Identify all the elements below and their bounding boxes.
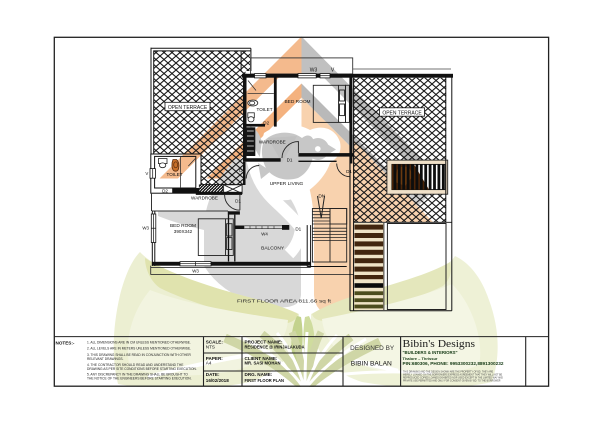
svg-text:W3: W3	[310, 67, 318, 73]
svg-text:OPEN TERRACE: OPEN TERRACE	[168, 105, 208, 111]
svg-text:FIRST FLOOR PLAN: FIRST FLOOR PLAN	[245, 378, 285, 383]
svg-text:NTS: NTS	[206, 345, 215, 350]
svg-text:D2: D2	[162, 188, 168, 193]
svg-text:2. ALL LEVELS ARE IN METERS UN: 2. ALL LEVELS ARE IN METERS UNLESS MENTI…	[87, 346, 191, 350]
svg-text:390X342: 390X342	[174, 229, 193, 234]
svg-text:RELEVANT DRAWINGS.: RELEVANT DRAWINGS.	[87, 357, 124, 361]
svg-text:PIN:680306, PHONE: 995330023: PIN:680306, PHONE: 9953300232,8891300232	[403, 361, 505, 366]
svg-text:DRAWING AS PER SITE CONDITIONS: DRAWING AS PER SITE CONDITIONS BEFORE ST…	[87, 367, 197, 371]
svg-text:D1: D1	[235, 199, 241, 204]
svg-text:W3: W3	[142, 225, 149, 230]
svg-text:V: V	[145, 171, 148, 176]
svg-text:W3: W3	[192, 268, 199, 273]
svg-text:TOILET: TOILET	[257, 107, 273, 112]
svg-text:DRG. NAME:: DRG. NAME:	[245, 372, 273, 377]
svg-text:1. ALL DIMENSIONS ARE IN CM U: 1. ALL DIMENSIONS ARE IN CM UNLESS MENTI…	[87, 341, 191, 345]
svg-text:W4: W4	[261, 231, 268, 236]
svg-text:DATE:: DATE:	[206, 372, 220, 377]
svg-text:WARDROBE: WARDROBE	[191, 195, 218, 200]
svg-text:"BUILDERS & INTERIORS": "BUILDERS & INTERIORS"	[403, 350, 458, 355]
svg-text:RESIDENCE @ IRINJALAKUDA: RESIDENCE @ IRINJALAKUDA	[245, 345, 306, 350]
svg-text:D2: D2	[263, 121, 269, 126]
svg-text:A4: A4	[206, 360, 212, 365]
svg-text:TOILET: TOILET	[167, 172, 183, 177]
svg-text:MR. SASI MOHAN: MR. SASI MOHAN	[245, 360, 282, 365]
svg-text:THE NOTICE OF THE ENGINEERS BE: THE NOTICE OF THE ENGINEERS BEFORE START…	[87, 376, 192, 380]
svg-text:D1: D1	[287, 157, 293, 162]
svg-text:WARDROBE: WARDROBE	[259, 140, 286, 145]
svg-text:OPEN TERRACE: OPEN TERRACE	[382, 110, 422, 116]
svg-text:PRIVATE USE PERMITTED AND ONLY: PRIVATE USE PERMITTED AND ONLY FOR CONSE…	[403, 380, 501, 383]
svg-text:D1: D1	[295, 227, 301, 232]
svg-text:UPPER LIVING: UPPER LIVING	[270, 181, 304, 187]
svg-text:16/02/2018: 16/02/2018	[206, 378, 229, 383]
svg-text:BIBIN BALAN: BIBIN BALAN	[351, 360, 392, 367]
svg-text:D1: D1	[346, 169, 352, 174]
svg-text:FIRST FLOOR AREA 811.66 sq: FIRST FLOOR AREA 811.66 sq ft	[237, 298, 332, 303]
svg-text:NOTES:-: NOTES:-	[56, 340, 75, 345]
svg-text:Bibin's Designs: Bibin's Designs	[403, 339, 476, 350]
svg-text:MERELY LOANED ON THE BORROWERS: MERELY LOANED ON THE BORROWERS EXPRESS A…	[403, 374, 503, 377]
svg-text:BED ROOM: BED ROOM	[284, 99, 310, 105]
svg-text:DESIGNED BY: DESIGNED BY	[350, 346, 394, 352]
svg-text:BALCONY: BALCONY	[261, 246, 285, 252]
svg-text:REPRODUCED COPIED LOANED EXHIB: REPRODUCED COPIED LOANED EXHIBITED NOR U…	[403, 377, 503, 380]
svg-text:THIS DRAWING AND THE DESIGN SH: THIS DRAWING AND THE DESIGN SHOWN ARE TH…	[403, 371, 494, 374]
